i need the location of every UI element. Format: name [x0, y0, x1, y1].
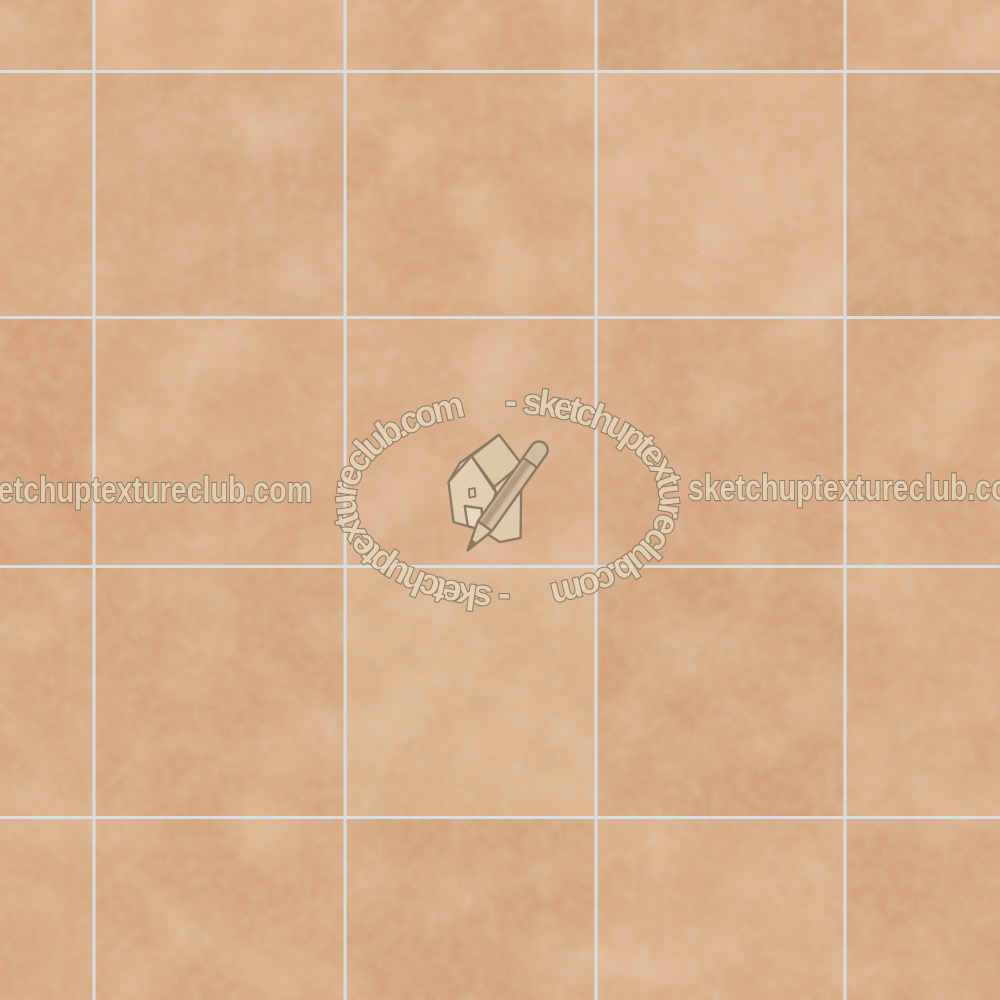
svg-text:sketchuptextureclub.com: sketchuptextureclub.com: [0, 469, 312, 510]
svg-text:sketchuptextureclub.com: sketchuptextureclub.com: [688, 467, 1000, 508]
